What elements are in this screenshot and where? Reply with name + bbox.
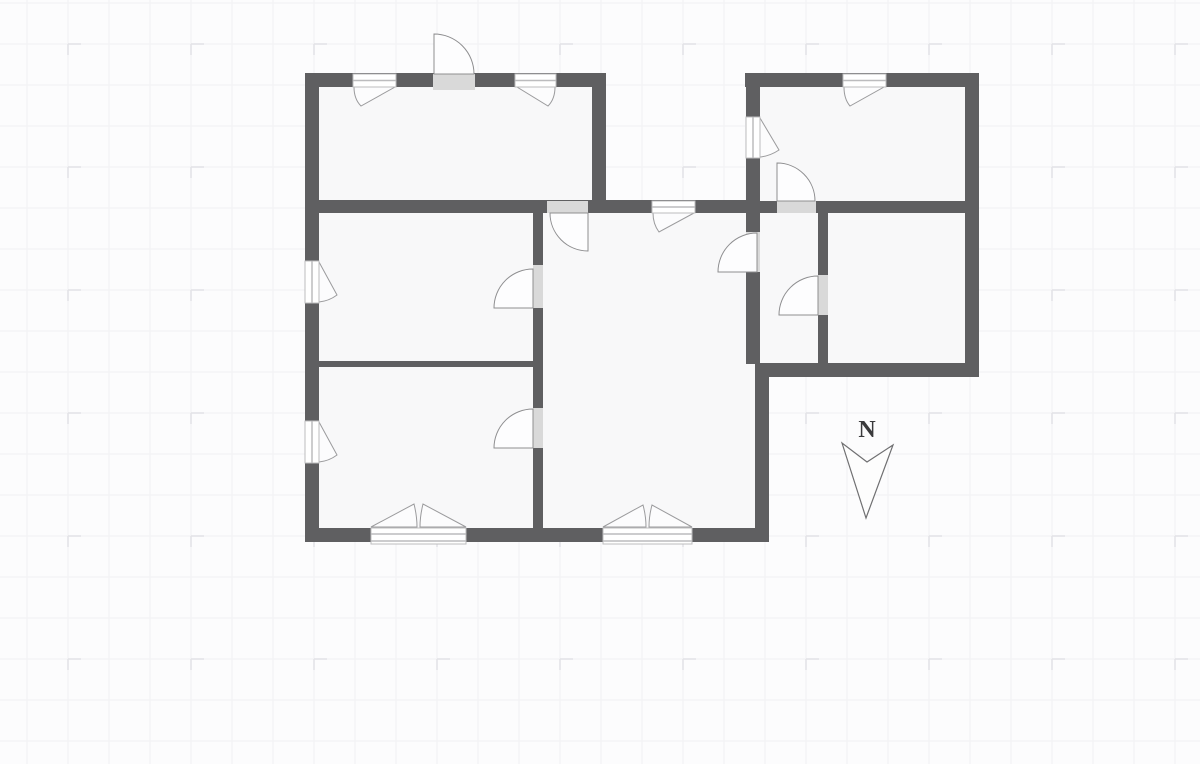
door-opening [533,265,543,308]
floorplan-canvas[interactable] [0,0,1200,764]
door-opening [777,201,816,213]
wall-left-exterior[interactable] [305,73,319,542]
wall-topleft-room-right[interactable] [592,73,606,213]
wall-interior-vertical-left[interactable] [533,200,543,535]
wall-living-right[interactable] [755,363,769,542]
room-top-left[interactable] [305,73,606,213]
door-opening [818,275,828,315]
door-opening [547,201,588,213]
north-label: N [858,417,875,444]
floorplan-stage: N [0,0,1200,764]
wall-right-wing-bottom[interactable] [755,363,979,377]
wall-right-wing-right[interactable] [965,73,979,377]
room-big-right[interactable] [818,200,979,377]
door-opening [533,408,543,448]
wall-left-thin-partition[interactable] [318,361,536,367]
door-opening [433,74,475,90]
